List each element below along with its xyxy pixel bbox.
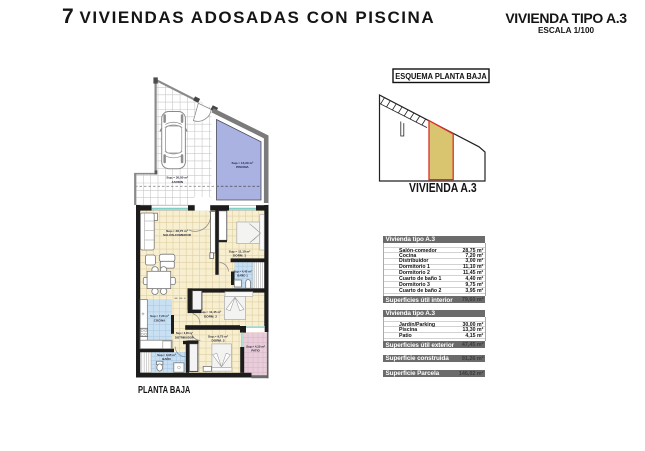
svg-text:DORM. 2: DORM. 2 <box>204 314 217 318</box>
svg-text:PATIO: PATIO <box>251 348 260 352</box>
svg-text:DISTRIBUIDOR: DISTRIBUIDOR <box>175 335 194 339</box>
svg-text:DORM. 1: DORM. 1 <box>233 254 246 258</box>
svg-text:SALÓN-COMEDOR: SALÓN-COMEDOR <box>163 232 192 237</box>
svg-text:ESQUEMA PLANTA BAJA: ESQUEMA PLANTA BAJA <box>395 71 487 81</box>
svg-text:Sup.= 3,00 m²: Sup.= 3,00 m² <box>176 331 193 335</box>
svg-text:BAÑO 1: BAÑO 1 <box>237 273 248 278</box>
svg-text:PISCINA: PISCINA <box>236 165 249 169</box>
svg-text:JARDIN: JARDIN <box>172 180 184 184</box>
svg-text:DORM. 3: DORM. 3 <box>212 338 225 342</box>
svg-text:COCINA: COCINA <box>154 318 166 322</box>
svg-text:BAÑO: BAÑO <box>162 356 171 361</box>
